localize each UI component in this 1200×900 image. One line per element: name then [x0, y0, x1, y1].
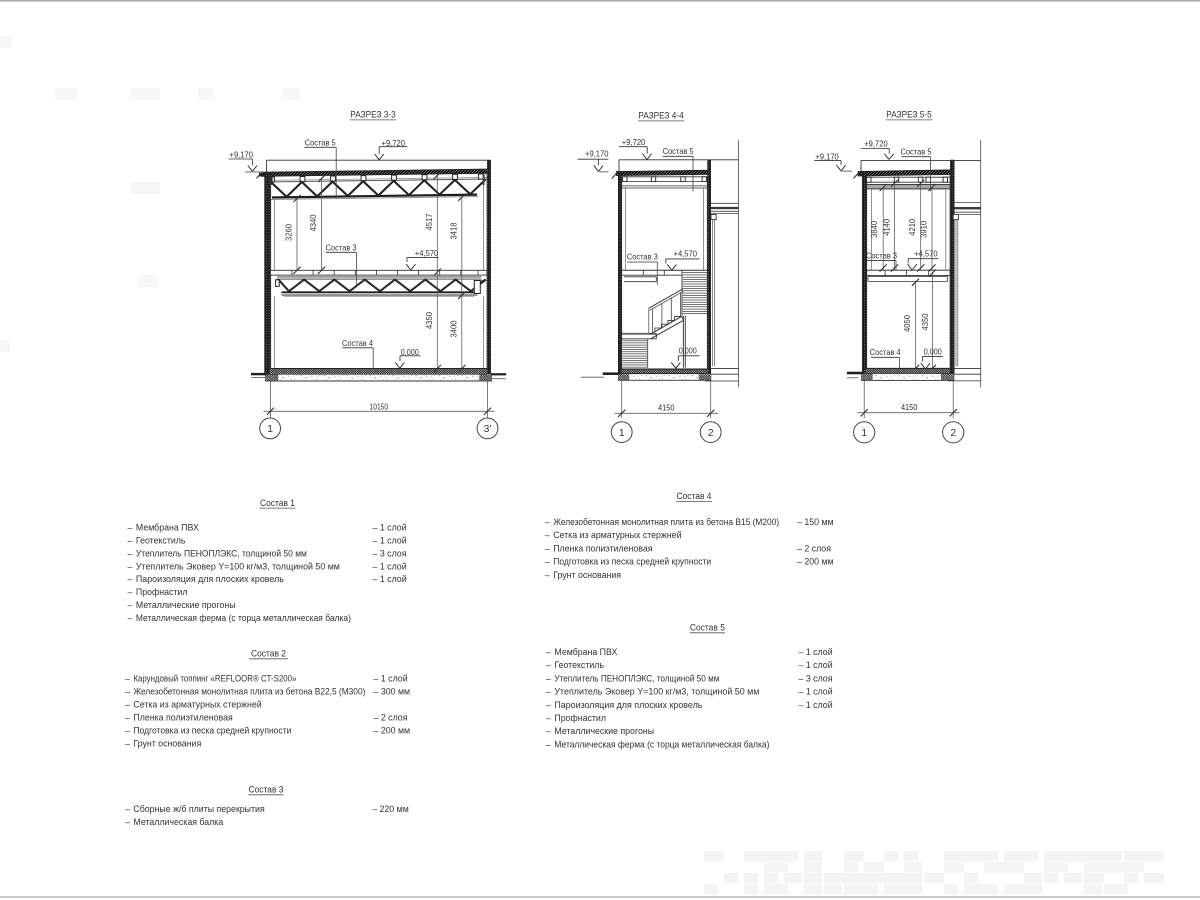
- svg-text:+9,170: +9,170: [230, 150, 254, 159]
- svg-text:Сетка из арматурных стержней: Сетка из арматурных стержней: [553, 530, 681, 540]
- svg-text:+4,570: +4,570: [415, 249, 439, 258]
- svg-text:–: –: [546, 660, 551, 670]
- svg-text:Состав 3: Состав 3: [627, 252, 658, 262]
- svg-text:10150: 10150: [370, 402, 389, 411]
- svg-text:Состав 4: Состав 4: [870, 347, 901, 357]
- svg-text:Пароизоляция для плоских крове: Пароизоляция для плоских кровель: [136, 574, 284, 584]
- svg-text:– 1 слой: – 1 слой: [374, 674, 408, 684]
- svg-text:–: –: [545, 543, 550, 553]
- svg-text:–: –: [125, 713, 130, 723]
- svg-text:Пароизоляция для плоских крове: Пароизоляция для плоских кровель: [554, 700, 702, 710]
- svg-text:3260: 3260: [285, 223, 294, 241]
- svg-text:Утеплитель ПЕНОПЛЭКС, толщиной: Утеплитель ПЕНОПЛЭКС, толщиной 50 мм: [136, 548, 307, 558]
- svg-text:1: 1: [619, 428, 625, 439]
- svg-text:+9,170: +9,170: [815, 152, 839, 161]
- svg-text:– 1 слой: – 1 слой: [799, 687, 833, 697]
- svg-text:– 1 слой: – 1 слой: [373, 574, 407, 584]
- svg-text:–: –: [125, 739, 130, 749]
- svg-text:– 3 слоя: – 3 слоя: [373, 548, 407, 558]
- svg-text:–: –: [125, 687, 130, 697]
- svg-text:Мембрана ПВХ: Мембрана ПВХ: [136, 523, 199, 533]
- svg-text:4150: 4150: [658, 404, 675, 413]
- svg-text:–: –: [546, 700, 551, 710]
- svg-text:–: –: [546, 647, 551, 657]
- svg-text:Состав 2: Состав 2: [251, 649, 286, 659]
- svg-text:– 2 слоя: – 2 слоя: [797, 543, 831, 553]
- svg-text:– 2 слоя: – 2 слоя: [374, 713, 408, 723]
- svg-text:–: –: [128, 574, 133, 584]
- svg-text:– 300 мм: – 300 мм: [374, 687, 411, 697]
- svg-text:–: –: [545, 570, 550, 580]
- svg-text:Пленка полиэтиленовая: Пленка полиэтиленовая: [553, 543, 653, 553]
- svg-text:4350: 4350: [425, 311, 434, 329]
- svg-text:Состав 3: Состав 3: [249, 785, 284, 795]
- svg-text:– 200 мм: – 200 мм: [797, 557, 834, 567]
- svg-text:Пленка полиэтиленовая: Пленка полиэтиленовая: [133, 713, 233, 723]
- svg-text:Геотекстиль: Геотекстиль: [554, 660, 604, 670]
- svg-text:Утеплитель Эковер Y=100 кг/м3,: Утеплитель Эковер Y=100 кг/м3, толщиной …: [136, 561, 340, 571]
- svg-text:– 1 слой: – 1 слой: [373, 523, 407, 533]
- svg-text:Подготовка из песка средней кр: Подготовка из песка средней крупности: [553, 557, 711, 567]
- svg-text:–: –: [128, 587, 133, 597]
- svg-text:3418: 3418: [449, 223, 458, 240]
- svg-text:Состав 4: Состав 4: [342, 338, 373, 348]
- svg-text:– 1 слой: – 1 слой: [799, 700, 833, 710]
- svg-text:3840: 3840: [870, 220, 879, 238]
- svg-text:–: –: [125, 674, 130, 684]
- svg-text:– 200 мм: – 200 мм: [374, 726, 411, 736]
- svg-text:–: –: [128, 600, 133, 610]
- svg-text:3400: 3400: [449, 320, 458, 338]
- svg-text:Состав 3: Состав 3: [866, 250, 897, 260]
- svg-text:Состав 4: Состав 4: [677, 491, 712, 501]
- svg-text:Состав 1: Состав 1: [260, 498, 295, 508]
- svg-text:– 1 слой: – 1 слой: [373, 536, 407, 546]
- svg-text:–: –: [545, 557, 550, 567]
- svg-text:4050: 4050: [903, 314, 912, 332]
- svg-text:Железобетонная монолитная пли: Железобетонная монолитная плита из бетон…: [553, 517, 779, 527]
- svg-text:Грунт основания: Грунт основания: [133, 739, 201, 749]
- svg-text:Утеплитель Эковер Y=100 кг/м3,: Утеплитель Эковер Y=100 кг/м3, толщиной …: [554, 687, 759, 697]
- svg-text:Геотекстиль: Геотекстиль: [136, 536, 186, 546]
- svg-text:Сборные ж/б плиты перекрытия: Сборные ж/б плиты перекрытия: [133, 804, 265, 814]
- svg-text:+9,170: +9,170: [585, 149, 609, 158]
- svg-text:4517: 4517: [425, 214, 434, 231]
- svg-text:Утеплитель ПЕНОПЛЭКС, толщиной: Утеплитель ПЕНОПЛЭКС, толщиной 50 мм: [554, 673, 719, 683]
- svg-text:–: –: [125, 726, 130, 736]
- svg-text:Профнастил: Профнастил: [554, 713, 606, 723]
- svg-text:Состав 5: Состав 5: [901, 146, 932, 156]
- svg-text:–: –: [546, 726, 551, 736]
- svg-text:+9,720: +9,720: [864, 139, 888, 148]
- svg-text:–: –: [125, 817, 130, 827]
- svg-text:Металлические прогоны: Металлические прогоны: [554, 726, 654, 736]
- svg-text:–: –: [125, 804, 130, 814]
- svg-text:2: 2: [708, 428, 714, 439]
- svg-text:–: –: [128, 613, 133, 623]
- svg-text:+4,570: +4,570: [674, 250, 698, 259]
- svg-text:РАЗРЕЗ 4-4: РАЗРЕЗ 4-4: [638, 111, 684, 122]
- svg-text:–: –: [128, 548, 133, 558]
- svg-text:–: –: [128, 523, 133, 533]
- svg-text:4140: 4140: [883, 218, 892, 236]
- svg-text:0,000: 0,000: [924, 347, 942, 356]
- svg-text:Металлическая балка: Металлическая балка: [133, 817, 223, 827]
- svg-text:– 220 мм: – 220 мм: [372, 804, 409, 814]
- svg-text:Грунт основания: Грунт основания: [553, 570, 621, 580]
- svg-text:Железобетонная монолитная пли: Железобетонная монолитная плита из бетон…: [133, 687, 365, 697]
- svg-text:– 3 слоя: – 3 слоя: [799, 673, 833, 683]
- svg-text:– 150 мм: – 150 мм: [797, 517, 834, 527]
- svg-text:РАЗРЕЗ 3-3: РАЗРЕЗ 3-3: [350, 109, 396, 120]
- svg-text:Профнастил: Профнастил: [136, 587, 188, 597]
- svg-text:Состав 5: Состав 5: [690, 623, 725, 633]
- svg-text:Мембрана ПВХ: Мембрана ПВХ: [554, 647, 617, 657]
- svg-text:Состав 5: Состав 5: [663, 146, 694, 156]
- svg-text:–: –: [128, 536, 133, 546]
- svg-text:3910: 3910: [919, 220, 928, 238]
- svg-text:4350: 4350: [921, 313, 930, 331]
- svg-text:3': 3': [484, 424, 492, 435]
- svg-text:– 1 слой: – 1 слой: [373, 561, 407, 571]
- svg-text:–: –: [545, 530, 550, 540]
- svg-text:4150: 4150: [901, 403, 918, 412]
- svg-text:Состав 3: Состав 3: [326, 243, 357, 253]
- svg-text:– 1 слой: – 1 слой: [799, 647, 833, 657]
- svg-text:–: –: [546, 673, 551, 683]
- svg-text:–: –: [125, 700, 130, 710]
- svg-text:Металлическая ферма (с торца м: Металлическая ферма (с торца металлическ…: [554, 739, 769, 749]
- svg-text:Подготовка из песка средней кр: Подготовка из песка средней крупности: [133, 726, 291, 736]
- svg-text:–: –: [128, 561, 133, 571]
- svg-text:0,000: 0,000: [679, 347, 697, 356]
- svg-text:+9,720: +9,720: [622, 138, 646, 147]
- svg-text:4210: 4210: [908, 218, 917, 236]
- svg-text:Карундовый топпинг «REFLOOR® C: Карундовый топпинг «REFLOOR® CT-S200»: [133, 674, 296, 684]
- svg-text:– 1 слой: – 1 слой: [799, 660, 833, 670]
- svg-text:РАЗРЕЗ 5-5: РАЗРЕЗ 5-5: [886, 109, 932, 120]
- svg-text:–: –: [545, 517, 550, 527]
- svg-text:Металлические прогоны: Металлические прогоны: [136, 600, 236, 610]
- svg-text:Сетка из арматурных стержней: Сетка из арматурных стержней: [133, 700, 261, 710]
- svg-text:+4,570: +4,570: [914, 250, 938, 259]
- svg-text:4340: 4340: [309, 214, 318, 232]
- svg-text:Металлическая ферма (с торца м: Металлическая ферма (с торца металлическ…: [136, 613, 351, 623]
- svg-text:1: 1: [267, 424, 273, 435]
- svg-text:–: –: [546, 739, 551, 749]
- svg-text:1: 1: [861, 428, 867, 439]
- svg-text:2: 2: [950, 428, 956, 439]
- svg-text:–: –: [546, 713, 551, 723]
- svg-text:Состав 5: Состав 5: [305, 138, 336, 148]
- svg-text:–: –: [546, 687, 551, 697]
